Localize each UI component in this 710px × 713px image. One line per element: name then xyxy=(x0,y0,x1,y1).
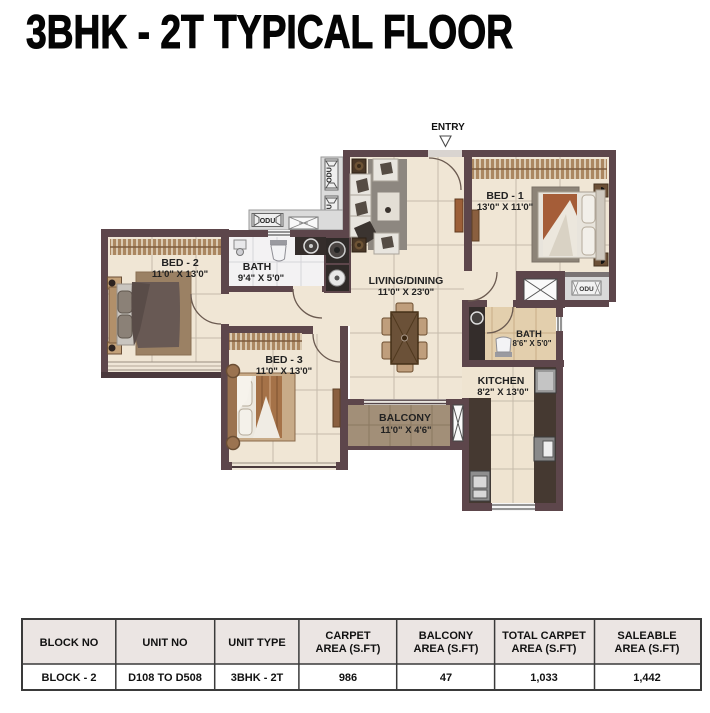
svg-text:1,442: 1,442 xyxy=(633,672,661,684)
svg-text:BATH: BATH xyxy=(243,261,271,273)
svg-text:1,033: 1,033 xyxy=(530,672,558,684)
svg-text:8'2" X 13'0": 8'2" X 13'0" xyxy=(477,387,529,398)
svg-text:BLOCK NO: BLOCK NO xyxy=(40,637,99,649)
svg-text:D108 TO D508: D108 TO D508 xyxy=(128,672,202,684)
svg-text:986: 986 xyxy=(339,672,357,684)
svg-text:ODU: ODU xyxy=(579,286,594,293)
svg-text:AREA (S.FT): AREA (S.FT) xyxy=(615,643,680,655)
svg-text:11'0" X 13'0": 11'0" X 13'0" xyxy=(256,366,312,377)
svg-text:UNIT NO: UNIT NO xyxy=(142,637,188,649)
svg-text:8'6" X 5'0": 8'6" X 5'0" xyxy=(513,339,552,348)
svg-text:UNIT TYPE: UNIT TYPE xyxy=(228,637,285,649)
svg-text:11'0" X 13'0": 11'0" X 13'0" xyxy=(152,269,208,280)
svg-text:3BHK - 2T TYPICAL FLOOR: 3BHK - 2T TYPICAL FLOOR xyxy=(26,5,513,58)
svg-text:AREA (S.FT): AREA (S.FT) xyxy=(512,643,577,655)
svg-text:BED - 2: BED - 2 xyxy=(161,257,199,269)
svg-text:9'4" X 5'0": 9'4" X 5'0" xyxy=(238,273,284,284)
svg-text:BED - 3: BED - 3 xyxy=(265,354,303,366)
svg-text:13'0" X 11'0": 13'0" X 11'0" xyxy=(477,202,533,213)
svg-text:ODU: ODU xyxy=(260,218,276,225)
svg-text:KITCHEN: KITCHEN xyxy=(478,375,525,387)
svg-text:BED - 1: BED - 1 xyxy=(486,190,524,202)
svg-text:CARPET: CARPET xyxy=(325,630,371,642)
svg-text:LIVING/DINING: LIVING/DINING xyxy=(369,275,444,287)
svg-text:47: 47 xyxy=(440,672,452,684)
svg-text:AREA (S.FT): AREA (S.FT) xyxy=(414,643,479,655)
svg-text:BALCONY: BALCONY xyxy=(419,630,474,642)
svg-text:SALEABLE: SALEABLE xyxy=(617,630,676,642)
svg-text:3BHK - 2T: 3BHK - 2T xyxy=(231,672,284,684)
svg-text:ENTRY: ENTRY xyxy=(431,122,465,133)
svg-text:AREA (S.FT): AREA (S.FT) xyxy=(316,643,381,655)
svg-text:11'0" X 4'6": 11'0" X 4'6" xyxy=(380,425,431,436)
svg-text:BLOCK - 2: BLOCK - 2 xyxy=(42,672,97,684)
svg-text:11'0" X 23'0": 11'0" X 23'0" xyxy=(378,287,434,298)
svg-text:BALCONY: BALCONY xyxy=(379,412,431,424)
svg-text:TOTAL CARPET: TOTAL CARPET xyxy=(502,630,586,642)
svg-text:ODU: ODU xyxy=(327,167,334,183)
